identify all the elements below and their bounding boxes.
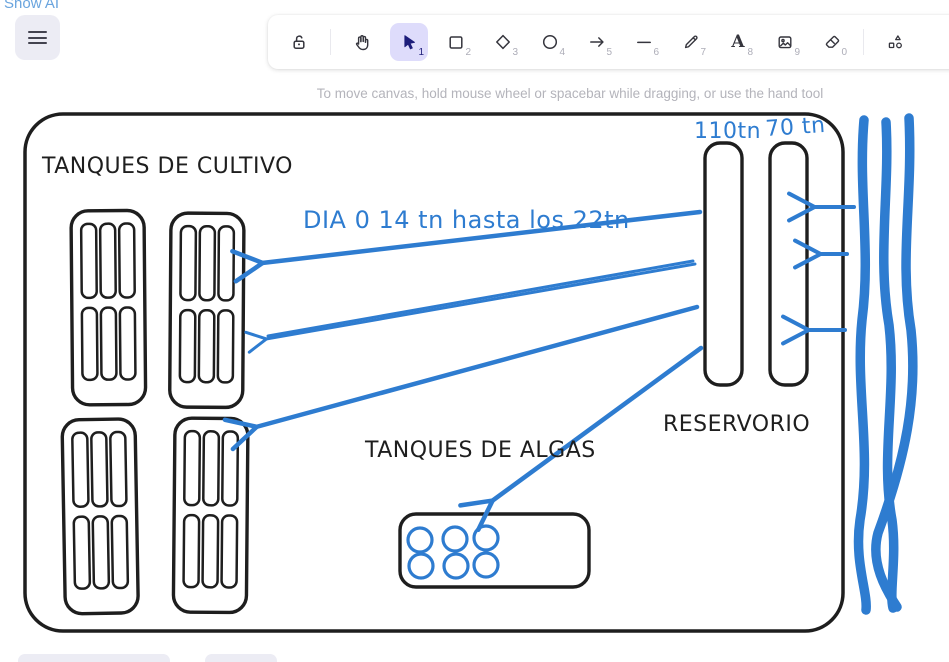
toolbar-divider bbox=[863, 29, 864, 55]
algae-cell-3 bbox=[474, 526, 498, 550]
canvas-hint-text: To move canvas, hold mouse wheel or spac… bbox=[250, 86, 890, 101]
tool-badge: 1 bbox=[418, 48, 424, 58]
cursor-arrow-icon bbox=[399, 32, 419, 52]
tool-toolbar: 1 2 3 4 bbox=[268, 15, 949, 69]
tool-rectangle-button[interactable]: 2 bbox=[437, 23, 475, 61]
tool-badge: 9 bbox=[794, 48, 800, 58]
hamburger-icon bbox=[28, 31, 47, 44]
cultivation-tank-group-3[interactable] bbox=[62, 419, 138, 614]
tool-badge: 7 bbox=[700, 48, 706, 58]
tool-lock-button[interactable] bbox=[280, 23, 318, 61]
hand-icon bbox=[352, 32, 372, 52]
tool-ellipse-button[interactable]: 4 bbox=[531, 23, 569, 61]
algae-cell-2 bbox=[443, 527, 467, 551]
tool-image-button[interactable]: 9 bbox=[766, 23, 804, 61]
square-icon bbox=[446, 32, 466, 52]
label-dia-annotation[interactable]: DIA 0 14 tn hasta los 22tn bbox=[303, 206, 630, 234]
cultivation-tank-group-2[interactable] bbox=[170, 213, 244, 408]
cultivation-tank-group-1[interactable] bbox=[71, 210, 146, 405]
tool-eraser-button[interactable]: 0 bbox=[813, 23, 851, 61]
tool-badge: 0 bbox=[841, 48, 847, 58]
label-tanques-algas[interactable]: TANQUES DE ALGAS bbox=[364, 438, 596, 463]
eraser-icon bbox=[822, 32, 842, 52]
zoom-controls-bar[interactable] bbox=[18, 654, 170, 662]
tool-diamond-button[interactable]: 3 bbox=[484, 23, 522, 61]
flow-arrow-2b[interactable] bbox=[266, 264, 695, 339]
diamond-icon bbox=[493, 32, 513, 52]
label-tanques-cultivo[interactable]: TANQUES DE CULTIVO bbox=[41, 154, 293, 179]
label-reservorio[interactable]: RESERVORIO bbox=[663, 412, 810, 437]
tool-badge: 3 bbox=[512, 48, 518, 58]
tool-text-button[interactable]: A 8 bbox=[719, 23, 757, 61]
algae-cell-4 bbox=[409, 554, 433, 578]
tool-badge: 8 bbox=[747, 48, 753, 58]
river-strokes[interactable] bbox=[858, 118, 912, 610]
reservoir-tank-70[interactable] bbox=[770, 143, 807, 385]
app-window: Show AI bbox=[0, 0, 949, 662]
algae-cell-6 bbox=[474, 553, 498, 577]
label-capacity-70[interactable]: 70 tn bbox=[765, 113, 827, 142]
tool-line-button[interactable]: 6 bbox=[625, 23, 663, 61]
label-capacity-110[interactable]: 110tn bbox=[694, 119, 761, 144]
tool-badge: 6 bbox=[653, 48, 659, 58]
river-stroke-1 bbox=[858, 120, 866, 610]
tool-arrow-button[interactable]: 5 bbox=[578, 23, 616, 61]
tool-draw-button[interactable]: 7 bbox=[672, 23, 710, 61]
reservoir-tank-110[interactable] bbox=[705, 143, 742, 385]
tool-badge: 2 bbox=[465, 48, 471, 58]
tool-more-shapes-button[interactable] bbox=[876, 23, 914, 61]
algae-cell-5 bbox=[444, 554, 468, 578]
circle-icon bbox=[540, 32, 560, 52]
pencil-icon bbox=[681, 32, 701, 52]
algae-cell-1 bbox=[408, 528, 432, 552]
cultivation-tank-group-4[interactable] bbox=[173, 418, 248, 613]
arrow-right-icon bbox=[587, 32, 607, 52]
line-icon bbox=[634, 32, 654, 52]
image-icon bbox=[775, 32, 795, 52]
shapes-icon bbox=[885, 32, 905, 52]
menu-button[interactable] bbox=[15, 15, 60, 60]
tool-badge: 5 bbox=[606, 48, 612, 58]
tool-hand-button[interactable] bbox=[343, 23, 381, 61]
algae-tank[interactable] bbox=[400, 514, 589, 587]
facility-outline[interactable] bbox=[25, 114, 843, 631]
letter-a-icon: A bbox=[731, 34, 744, 51]
river-stroke-2 bbox=[884, 122, 894, 608]
unlocked-padlock-icon bbox=[289, 32, 309, 52]
toolbar-divider bbox=[330, 29, 331, 55]
undo-redo-bar[interactable] bbox=[205, 654, 277, 662]
tool-selection-button[interactable]: 1 bbox=[390, 23, 428, 61]
tool-badge: 4 bbox=[559, 48, 565, 58]
show-ai-link[interactable]: Show AI bbox=[4, 0, 59, 12]
